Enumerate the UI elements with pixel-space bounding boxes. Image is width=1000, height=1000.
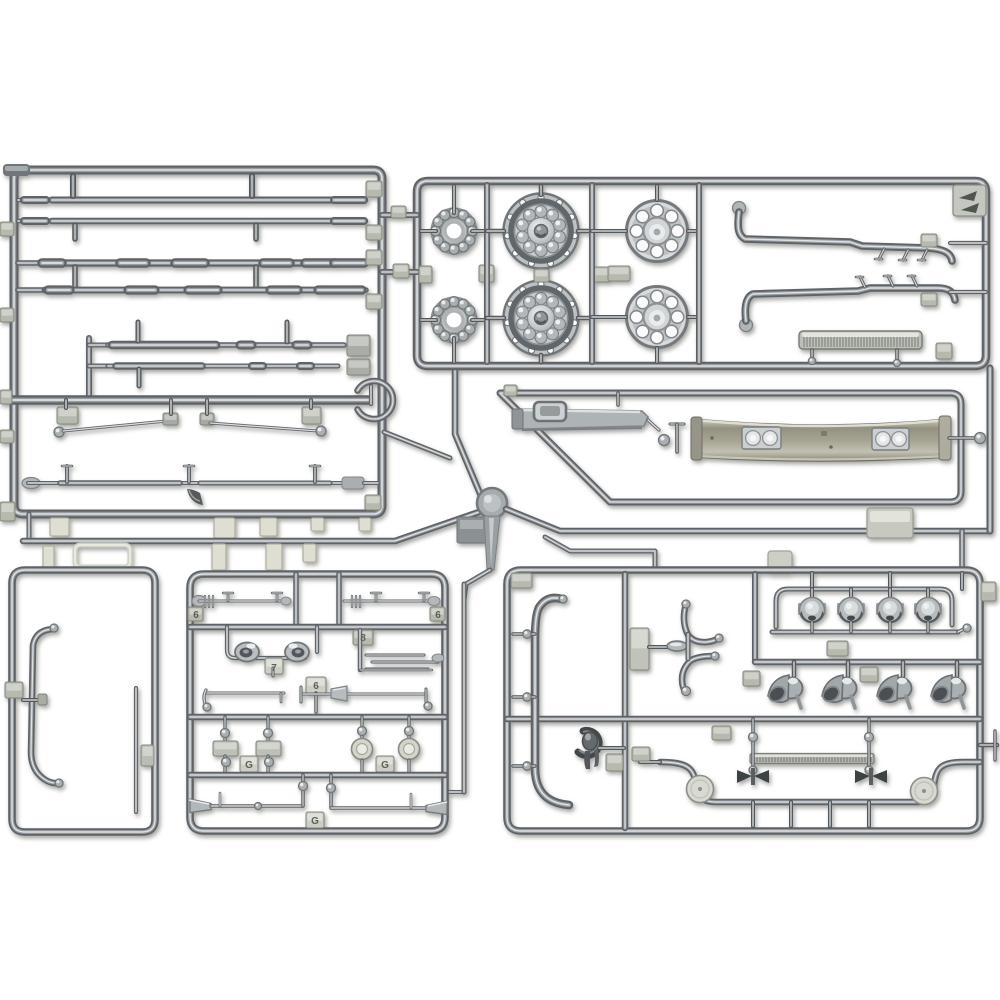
svg-text:G: G: [381, 760, 389, 771]
svg-text:6: 6: [313, 681, 319, 692]
svg-text:G: G: [245, 760, 253, 771]
svg-text:6: 6: [435, 610, 441, 621]
svg-text:8: 8: [360, 633, 366, 644]
svg-text:7: 7: [271, 663, 277, 674]
svg-text:6: 6: [193, 610, 199, 621]
svg-text:G: G: [311, 816, 319, 827]
